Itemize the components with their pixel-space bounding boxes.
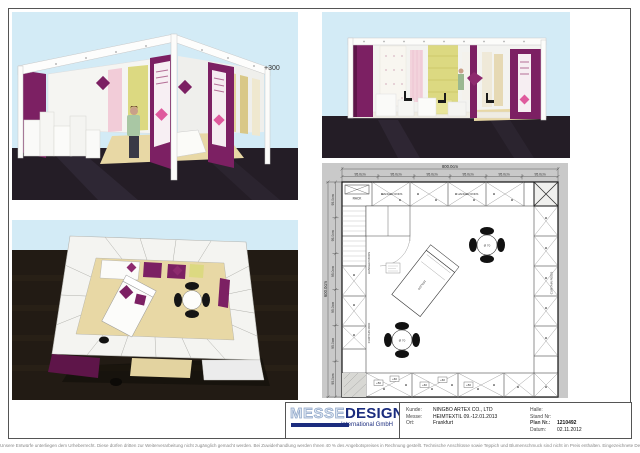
title-block-fields: Kunde: NINGBO ARTEX CO., LTD Messe: HEIM… <box>400 403 631 438</box>
logo-word-messe: MESSE <box>290 405 345 422</box>
svg-text:+50: +50 <box>376 381 381 385</box>
design-sheet: +300 <box>0 0 640 453</box>
svg-text:95.0cm: 95.0cm <box>390 172 401 176</box>
svg-text:95.0cm: 95.0cm <box>426 172 437 176</box>
svg-text:HANGER RODS: HANGER RODS <box>382 192 403 196</box>
svg-text:Ø 70: Ø 70 <box>399 338 406 342</box>
disclaimer-text: Unsere Entwürfe unterliegen dem Urheberr… <box>0 443 640 448</box>
title-block: MESSEDESIGN International GmbH Kunde: NI… <box>285 402 632 439</box>
hanger-rods-label: HANGER RODS <box>367 252 371 274</box>
field-datum: Datum: 02.11.2012 <box>530 427 629 434</box>
svg-text:+60: +60 <box>392 377 397 381</box>
floor-plan: 800.0cm 95.0cm 95.0cm 95.0cm 95.0cm 95.0… <box>322 163 612 398</box>
rack-label: RACK <box>353 197 363 201</box>
field-ort: Ort: Frankfurt <box>406 420 521 427</box>
svg-text:+60: +60 <box>440 378 445 382</box>
render-front-view <box>322 12 570 158</box>
svg-text:+60: +60 <box>422 383 427 387</box>
render-perspective-view: +300 <box>12 12 298 200</box>
render-overhead-view <box>12 208 298 400</box>
dim-overall-depth: 600.0cm <box>323 280 328 297</box>
svg-text:95.0cm: 95.0cm <box>331 266 335 277</box>
svg-text:95.0cm: 95.0cm <box>354 172 365 176</box>
svg-text:HANGER RODS: HANGER RODS <box>458 192 479 196</box>
svg-text:Ø 70: Ø 70 <box>484 243 491 247</box>
svg-text:95.0cm: 95.0cm <box>331 338 335 349</box>
svg-text:95.0cm: 95.0cm <box>498 172 509 176</box>
curtain-rods-label: CURTAIN RODS <box>550 272 554 295</box>
svg-text:95.0cm: 95.0cm <box>331 302 335 313</box>
dim-overall-width: 800.0cm <box>442 164 459 169</box>
svg-text:95.0cm: 95.0cm <box>462 172 473 176</box>
logo-subtitle: International GmbH <box>341 422 393 428</box>
svg-text:95.0cm: 95.0cm <box>331 373 335 384</box>
svg-text:+50: +50 <box>466 383 471 387</box>
svg-text:95.0cm: 95.0cm <box>331 230 335 241</box>
svg-text:95.0cm: 95.0cm <box>534 172 545 176</box>
svg-text:95.0cm: 95.0cm <box>331 194 335 205</box>
company-logo: MESSEDESIGN International GmbH <box>286 403 400 438</box>
elevation-label: +300 <box>264 65 280 72</box>
logo-word-design: DESIGN <box>345 405 400 422</box>
curtain-rod-label: CURTAIN ROD <box>367 322 371 343</box>
